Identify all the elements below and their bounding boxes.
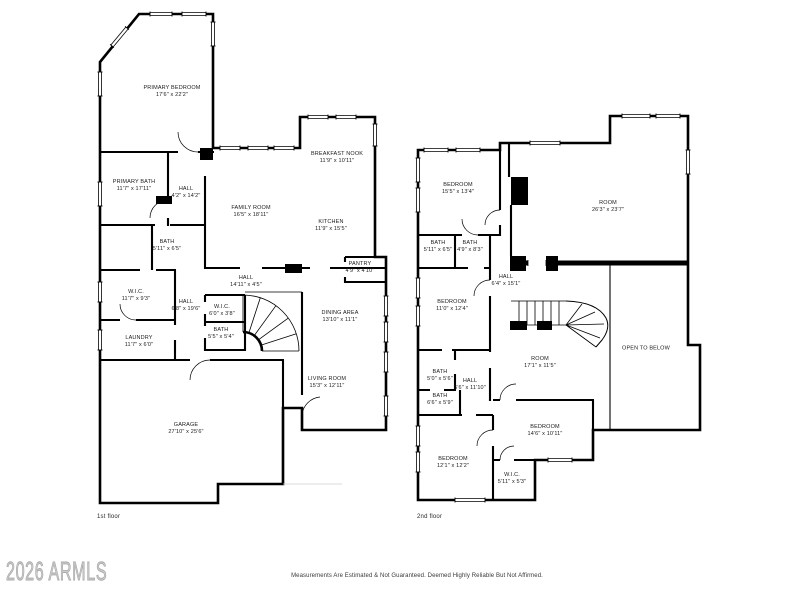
room-name: BATH xyxy=(208,327,234,334)
room-labels-layer: 1st floorPRIMARY BEDROOM17'6" x 22'2"PRI… xyxy=(0,0,800,600)
room-label: BREAKFAST NOOK11'9" x 10'11" xyxy=(311,151,363,165)
room-dims: 11'7" x 6'0" xyxy=(125,342,154,349)
room-name: HALL xyxy=(454,378,486,385)
room-dims: 13'10" x 11'1" xyxy=(321,317,358,324)
room-name: HALL xyxy=(230,275,262,282)
room-name: GARAGE xyxy=(168,422,203,429)
room-name: W.I.C. xyxy=(122,289,151,296)
room-label: PRIMARY BATH11'7" x 17'11" xyxy=(113,179,155,193)
room-dims: 6'8" x 19'6" xyxy=(172,306,201,313)
room-label: W.I.C.5'11" x 5'3" xyxy=(498,472,527,486)
room-label: HALL6'8" x 19'6" xyxy=(172,299,201,313)
room-label: BATH5'11" x 6'5" xyxy=(153,239,182,253)
floor-label: 1st floor xyxy=(97,514,120,520)
room-label: DINING AREA13'10" x 11'1" xyxy=(321,310,358,324)
room-name: FAMILY ROOM xyxy=(231,205,270,212)
room-label: HALL4'2" x 14'2" xyxy=(172,186,201,200)
room-name: KITCHEN xyxy=(315,219,347,226)
room-name: BATH xyxy=(427,369,453,376)
room-label: LIVING ROOM15'3" x 12'11" xyxy=(308,376,346,390)
room-name: LIVING ROOM xyxy=(308,376,346,383)
room-name: PRIMARY BEDROOM xyxy=(143,85,200,92)
floor-label: 2nd floor xyxy=(417,514,442,520)
room-label: KITCHEN11'9" x 15'5" xyxy=(315,219,347,233)
room-label: BATH5'11" x 6'5" xyxy=(424,240,453,254)
room-dims: 15'5" x 13'4" xyxy=(442,189,474,196)
room-dims: 6'6" x 11'10" xyxy=(454,385,486,392)
room-label: BATH5'0" x 5'6" xyxy=(427,369,453,383)
room-dims: 27'10" x 25'6" xyxy=(168,429,203,436)
room-label: BEDROOM14'6" x 10'11" xyxy=(528,424,563,438)
room-dims: 17'6" x 22'2" xyxy=(143,92,200,99)
room-name: BEDROOM xyxy=(528,424,563,431)
room-dims: 16'5" x 18'11" xyxy=(231,212,270,219)
room-dims: 5'11" x 6'5" xyxy=(424,247,453,254)
room-name: W.I.C. xyxy=(498,472,527,479)
room-name: BEDROOM xyxy=(442,182,474,189)
floor-plan-page: 1st floorPRIMARY BEDROOM17'6" x 22'2"PRI… xyxy=(0,0,800,600)
room-name: W.I.C. xyxy=(209,304,235,311)
room-name: HALL xyxy=(172,186,201,193)
room-dims: 11'9" x 10'11" xyxy=(311,158,363,165)
room-name: ROOM xyxy=(524,356,556,363)
room-label: BEDROOM12'1" x 12'2" xyxy=(437,456,469,470)
room-name: BATH xyxy=(424,240,453,247)
room-label: ROOM26'3" x 23'7" xyxy=(592,200,624,214)
room-dims: 17'1" x 11'5" xyxy=(524,363,556,370)
room-label: HALL14'11" x 4'5" xyxy=(230,275,262,289)
disclaimer-text: Measurements Are Estimated & Not Guarant… xyxy=(291,573,543,579)
room-name: BATH xyxy=(457,240,483,247)
room-dims: 5'11" x 6'5" xyxy=(153,246,182,253)
room-label: BATH5'5" x 5'4" xyxy=(208,327,234,341)
room-dims: 4'9" x 8'3" xyxy=(457,247,483,254)
watermark-text: 2026 ARMLS xyxy=(6,556,107,587)
room-dims: 4'2" x 14'2" xyxy=(172,193,201,200)
room-dims: 6'6" x 5'9" xyxy=(427,400,453,407)
room-label: BEDROOM15'5" x 13'4" xyxy=(442,182,474,196)
room-label: GARAGE27'10" x 25'6" xyxy=(168,422,203,436)
room-dims: 14'11" x 4'5" xyxy=(230,282,262,289)
room-name: BEDROOM xyxy=(437,456,469,463)
room-label: W.I.C.11'7" x 9'3" xyxy=(122,289,151,303)
room-name: OPEN TO BELOW xyxy=(622,346,670,353)
room-label: BATH4'9" x 8'3" xyxy=(457,240,483,254)
room-dims: 5'0" x 5'6" xyxy=(427,376,453,383)
room-name: HALL xyxy=(172,299,201,306)
room-name: BREAKFAST NOOK xyxy=(311,151,363,158)
room-dims: 11'7" x 9'3" xyxy=(122,296,151,303)
room-dims: 11'0" x 12'4" xyxy=(436,306,468,313)
room-name: BEDROOM xyxy=(436,299,468,306)
room-dims: 11'9" x 15'5" xyxy=(315,226,347,233)
room-label: OPEN TO BELOW xyxy=(622,346,670,353)
room-name: LAUNDRY xyxy=(125,335,154,342)
room-label: PRIMARY BEDROOM17'6" x 22'2" xyxy=(143,85,200,99)
room-name: BATH xyxy=(427,393,453,400)
room-dims: 14'6" x 10'11" xyxy=(528,431,563,438)
room-dims: 6'0" x 3'8" xyxy=(209,311,235,318)
room-dims: 11'7" x 17'11" xyxy=(113,186,155,193)
room-dims: 4'9" x 4'10" xyxy=(346,268,375,275)
room-name: PRIMARY BATH xyxy=(113,179,155,186)
room-name: DINING AREA xyxy=(321,310,358,317)
room-label: PANTRY4'9" x 4'10" xyxy=(346,261,375,275)
room-label: ROOM17'1" x 11'5" xyxy=(524,356,556,370)
room-dims: 6'4" x 15'1" xyxy=(492,281,521,288)
room-name: HALL xyxy=(492,274,521,281)
room-name: BATH xyxy=(153,239,182,246)
room-dims: 12'1" x 12'2" xyxy=(437,463,469,470)
room-label: FAMILY ROOM16'5" x 18'11" xyxy=(231,205,270,219)
room-dims: 26'3" x 23'7" xyxy=(592,207,624,214)
room-label: LAUNDRY11'7" x 6'0" xyxy=(125,335,154,349)
room-label: HALL6'4" x 15'1" xyxy=(492,274,521,288)
room-dims: 15'3" x 12'11" xyxy=(308,383,346,390)
room-dims: 5'5" x 5'4" xyxy=(208,334,234,341)
room-name: ROOM xyxy=(592,200,624,207)
room-label: HALL6'6" x 11'10" xyxy=(454,378,486,392)
room-label: W.I.C.6'0" x 3'8" xyxy=(209,304,235,318)
room-dims: 5'11" x 5'3" xyxy=(498,479,527,486)
room-label: BEDROOM11'0" x 12'4" xyxy=(436,299,468,313)
room-name: PANTRY xyxy=(346,261,375,268)
room-label: BATH6'6" x 5'9" xyxy=(427,393,453,407)
